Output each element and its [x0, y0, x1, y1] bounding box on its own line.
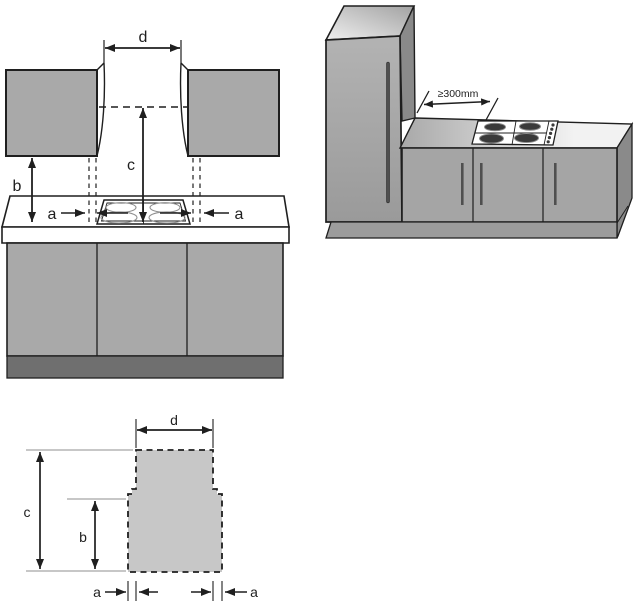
dim-label-a-left: a	[93, 584, 101, 600]
door-handle	[480, 163, 483, 205]
plinth	[326, 222, 617, 238]
cutout-shape	[128, 450, 222, 572]
burner	[480, 134, 504, 143]
dim-label-c: c	[24, 504, 31, 520]
counter-front-face	[402, 148, 617, 222]
tall-cabinet-handle	[387, 62, 390, 203]
hob-3d	[472, 121, 558, 145]
burner	[485, 123, 506, 131]
dim-label-b: b	[79, 529, 87, 545]
door-handle	[554, 163, 557, 205]
dim-d: d	[136, 412, 213, 448]
dim-a-left: a	[93, 581, 158, 601]
dim-b: b	[67, 499, 126, 569]
cutout-dimensions-diagram: d c b a a	[0, 0, 300, 611]
clearance-label: ≥300mm	[438, 88, 479, 100]
dim-label-a-right: a	[250, 584, 258, 600]
clearance-dim: ≥300mm	[417, 88, 498, 120]
dim-label-d: d	[170, 412, 178, 428]
burner	[520, 123, 541, 131]
installation-diagram-page: d c b a a	[0, 0, 639, 611]
door-handle	[461, 163, 464, 205]
dim-c: c	[24, 450, 134, 571]
burner	[515, 134, 539, 143]
dim-a-right: a	[191, 581, 258, 601]
